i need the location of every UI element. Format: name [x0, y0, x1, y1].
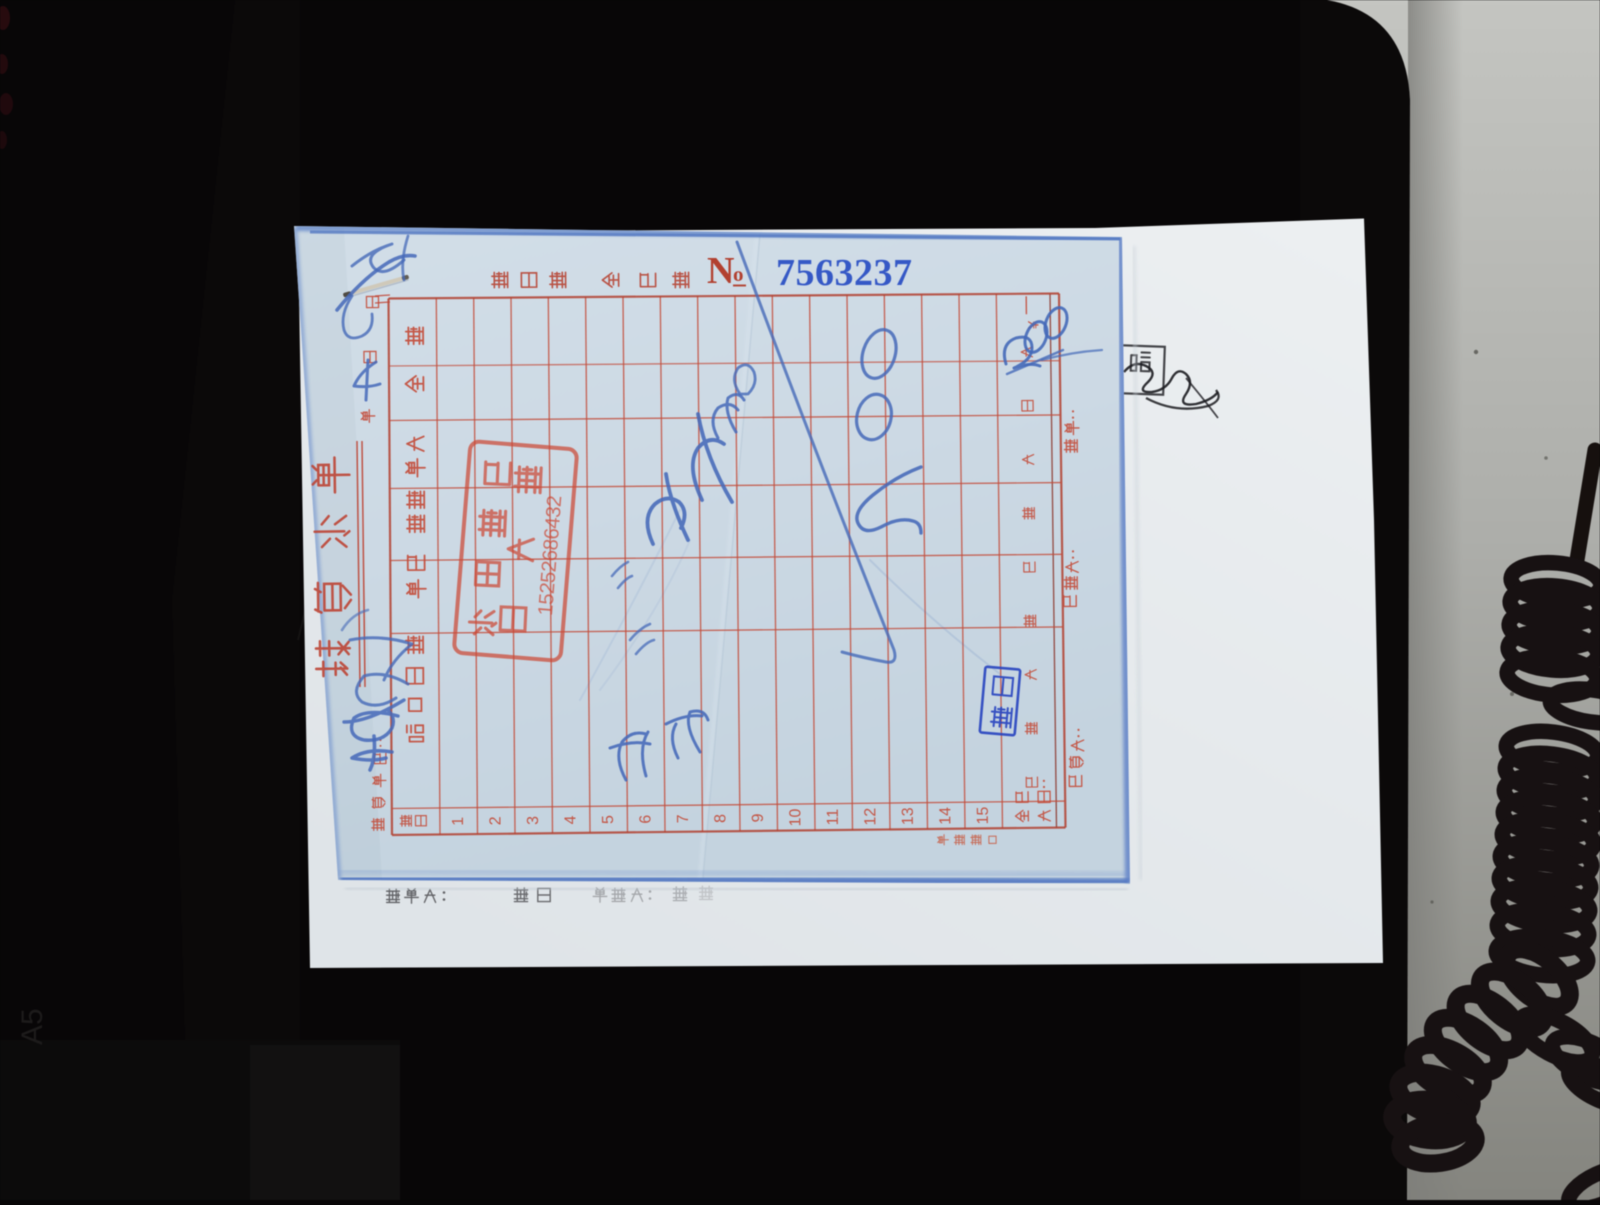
svg-text:15: 15: [975, 806, 992, 824]
svg-text:8: 8: [712, 814, 729, 823]
svg-text:o: o: [733, 262, 744, 286]
svg-text:N: N: [707, 250, 734, 292]
svg-text:10: 10: [787, 808, 804, 826]
svg-text:9: 9: [750, 813, 767, 822]
svg-text:14: 14: [937, 807, 954, 825]
svg-text:11: 11: [825, 809, 842, 826]
svg-text:12: 12: [862, 808, 879, 826]
svg-text:2: 2: [487, 816, 504, 825]
svg-text:7: 7: [675, 814, 692, 823]
svg-text:5: 5: [600, 815, 617, 824]
svg-text:A5: A5: [16, 1008, 49, 1045]
svg-text:3: 3: [525, 816, 542, 825]
svg-text:1: 1: [450, 817, 467, 826]
svg-text:6: 6: [637, 815, 654, 824]
svg-text:7563237: 7563237: [776, 252, 913, 294]
svg-text:13: 13: [900, 807, 917, 825]
svg-text:4: 4: [562, 815, 579, 824]
